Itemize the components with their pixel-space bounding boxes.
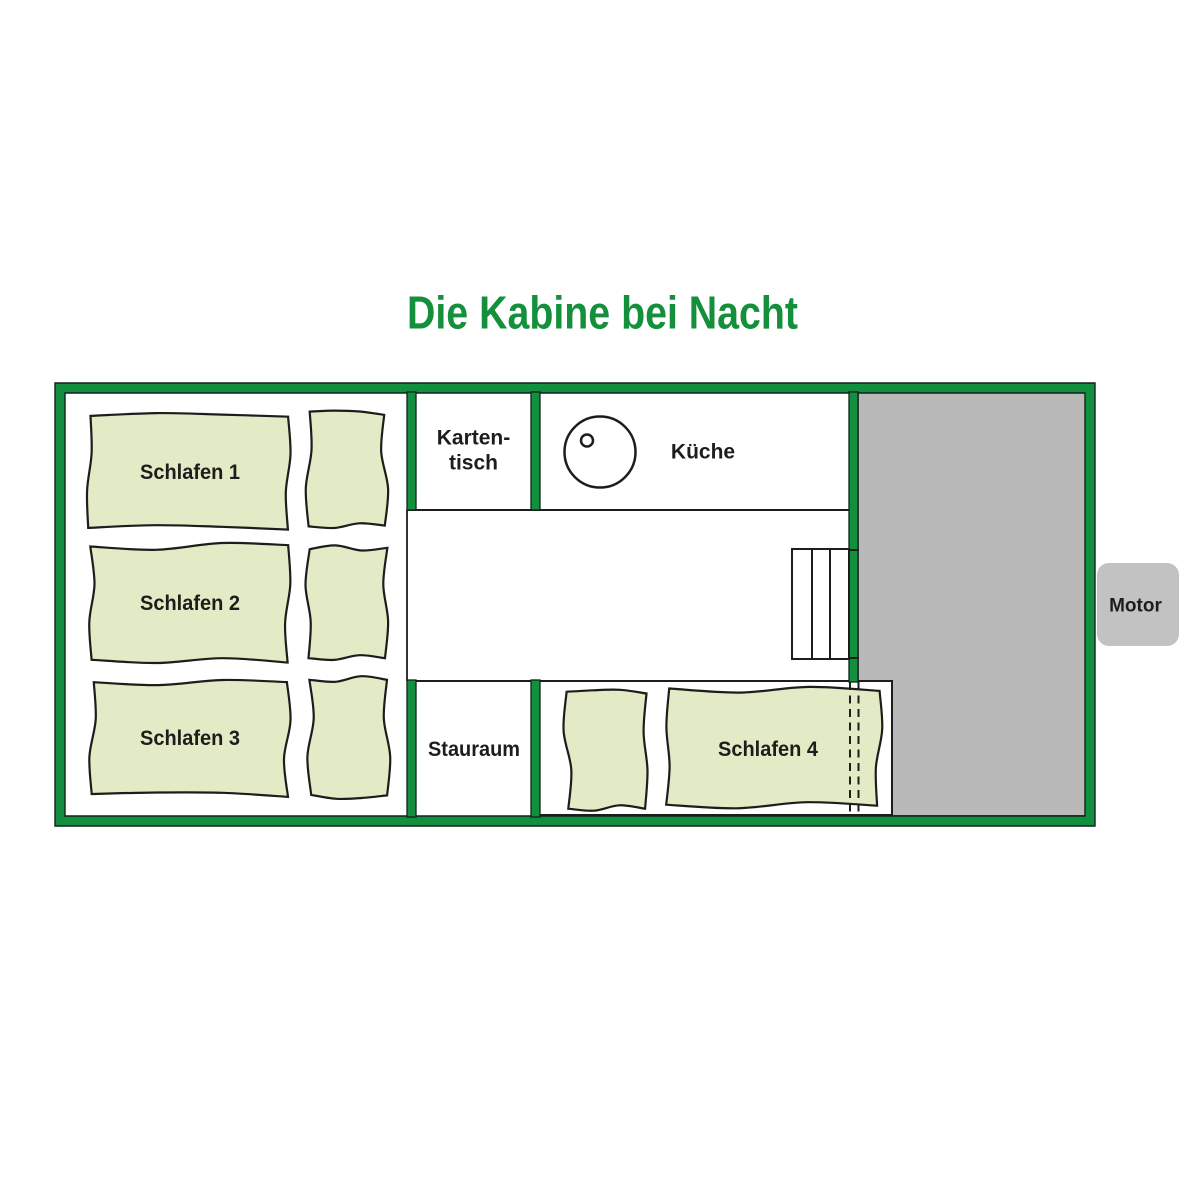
svg-text:Karten-: Karten- [437, 427, 511, 450]
svg-text:Stauraum: Stauraum [428, 738, 520, 761]
svg-text:tisch: tisch [449, 452, 498, 475]
svg-text:Schlafen 2: Schlafen 2 [140, 592, 240, 615]
svg-text:Schlafen 4: Schlafen 4 [718, 738, 818, 761]
svg-text:Küche: Küche [671, 441, 735, 464]
svg-text:Schlafen 3: Schlafen 3 [140, 727, 240, 750]
svg-text:Die Kabine bei Nacht: Die Kabine bei Nacht [407, 287, 798, 339]
svg-text:Motor: Motor [1109, 596, 1162, 617]
svg-text:Schlafen 1: Schlafen 1 [140, 461, 240, 484]
